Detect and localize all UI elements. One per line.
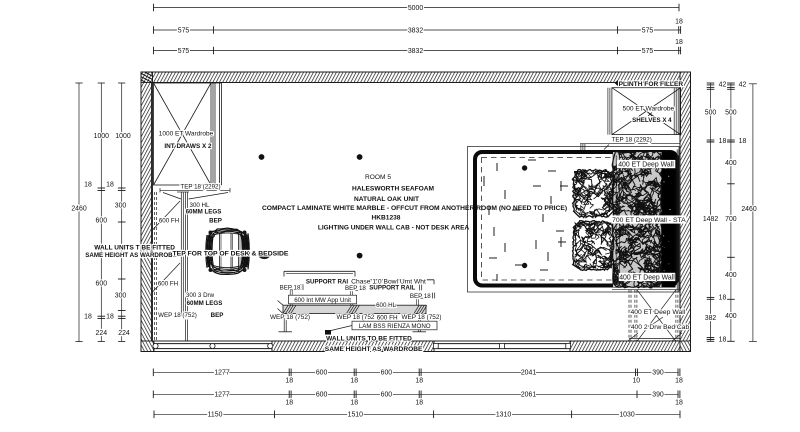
svg-text:575: 575 [642, 27, 654, 34]
svg-text:2041: 2041 [521, 370, 536, 377]
svg-text:INT DRAWS X 2: INT DRAWS X 2 [164, 143, 212, 150]
svg-text:1000: 1000 [115, 133, 130, 140]
svg-text:1150: 1150 [208, 412, 223, 419]
svg-text:400 ET Deep Wall: 400 ET Deep Wall [619, 274, 675, 281]
svg-text:500 ET Wardrobe: 500 ET Wardrobe [623, 106, 675, 113]
svg-text:2460: 2460 [71, 206, 86, 213]
svg-text:1310: 1310 [496, 412, 511, 419]
svg-text:18: 18 [675, 19, 683, 26]
svg-text:60MM LEGS: 60MM LEGS [186, 209, 222, 216]
svg-text:1030: 1030 [619, 412, 634, 419]
svg-text:600 HL: 600 HL [376, 302, 397, 309]
svg-text:BEP: BEP [211, 312, 224, 319]
svg-text:3832: 3832 [408, 48, 423, 55]
svg-text:18: 18 [84, 182, 92, 189]
svg-text:500: 500 [725, 110, 737, 117]
svg-text:382: 382 [705, 315, 717, 322]
svg-text:60MM LEGS: 60MM LEGS [187, 300, 223, 307]
svg-text:18: 18 [675, 400, 683, 407]
svg-text:SUPPORT RAIL: SUPPORT RAIL [369, 285, 415, 292]
svg-text:600: 600 [381, 392, 393, 399]
svg-text:500: 500 [705, 110, 717, 117]
svg-text:NATURAL OAK UNIT: NATURAL OAK UNIT [354, 196, 419, 203]
svg-text:300 3 Drw: 300 3 Drw [186, 292, 215, 299]
svg-text:18: 18 [415, 400, 423, 407]
svg-text:1510: 1510 [348, 412, 363, 419]
svg-text:1277: 1277 [214, 370, 229, 377]
svg-text:ROOM 5: ROOM 5 [365, 174, 391, 181]
svg-text:600: 600 [96, 218, 108, 225]
svg-text:42: 42 [739, 82, 747, 89]
svg-text:LAM BSS RIENZA MONO: LAM BSS RIENZA MONO [359, 323, 431, 330]
svg-text:WEP 18 (752): WEP 18 (752) [158, 312, 197, 319]
svg-text:TEP FOR TOP OF DESK & BEDSIDE: TEP FOR TOP OF DESK & BEDSIDE [173, 250, 289, 257]
svg-text:1000: 1000 [94, 133, 109, 140]
svg-text:1000 ET Wardrobe: 1000 ET Wardrobe [159, 131, 214, 138]
svg-text:WEP 18 (752): WEP 18 (752) [401, 314, 441, 321]
svg-text:TEP 18 (2292): TEP 18 (2292) [612, 137, 652, 144]
svg-text:BEP 18: BEP 18 [345, 285, 366, 292]
svg-text:18: 18 [675, 378, 683, 385]
svg-text:18: 18 [84, 314, 92, 321]
svg-text:18: 18 [285, 400, 293, 407]
svg-text:18: 18 [675, 39, 683, 46]
svg-text:400: 400 [725, 272, 737, 279]
svg-text:COMPACT LAMINATE WHITE MARBLE: COMPACT LAMINATE WHITE MARBLE - OFFCUT F… [262, 205, 567, 212]
svg-text:400 2 Drw Bed Cab: 400 2 Drw Bed Cab [631, 324, 690, 331]
svg-text:10: 10 [632, 378, 640, 385]
svg-text:300: 300 [115, 203, 127, 210]
svg-text:WEP 18 (752): WEP 18 (752) [270, 314, 310, 321]
svg-text:600 FH: 600 FH [377, 315, 398, 322]
svg-text:18: 18 [739, 138, 747, 145]
svg-text:HALESWORTH SEAFOAM: HALESWORTH SEAFOAM [352, 186, 435, 193]
svg-text:TEP 18 (2292): TEP 18 (2292) [180, 183, 220, 190]
svg-text:18: 18 [719, 138, 727, 145]
svg-text:18: 18 [106, 182, 114, 189]
svg-text:600 Int MW App Unit: 600 Int MW App Unit [294, 297, 351, 304]
svg-text:575: 575 [642, 48, 654, 55]
svg-text:HKB1238: HKB1238 [372, 215, 401, 222]
svg-text:42: 42 [719, 82, 727, 89]
svg-text:400: 400 [725, 160, 737, 167]
svg-text:5000: 5000 [408, 5, 423, 12]
svg-text:2460: 2460 [741, 206, 756, 213]
svg-text:WEP 18 (752: WEP 18 (752 [337, 314, 375, 321]
svg-text:LIGHTING UNDER WALL CAB - NOT: LIGHTING UNDER WALL CAB - NOT DESK AREA [318, 225, 470, 232]
svg-text:600: 600 [381, 370, 393, 377]
svg-text:224: 224 [118, 330, 130, 337]
svg-text:3832: 3832 [408, 27, 423, 34]
svg-text:18: 18 [350, 378, 358, 385]
svg-text:1277: 1277 [214, 392, 229, 399]
svg-text:BEP: BEP [209, 218, 222, 225]
svg-text:600: 600 [316, 392, 328, 399]
svg-text:SUPPORT RAI: SUPPORT RAI [306, 278, 349, 285]
svg-text:300: 300 [115, 293, 127, 300]
svg-text:SAME HEIGHT AS WARDROBE: SAME HEIGHT AS WARDROBE [85, 252, 177, 259]
svg-text:600: 600 [316, 370, 328, 377]
svg-text:2061: 2061 [521, 392, 536, 399]
svg-text:390: 390 [652, 370, 664, 377]
svg-text:18: 18 [719, 337, 727, 344]
svg-text:18: 18 [285, 378, 293, 385]
svg-text:400: 400 [725, 313, 737, 320]
svg-text:18: 18 [106, 314, 114, 321]
svg-text:BEP 18: BEP 18 [410, 293, 431, 300]
svg-text:400 ET Deep Wall: 400 ET Deep Wall [631, 309, 686, 316]
svg-text:390: 390 [652, 392, 664, 399]
svg-text:WALL UNITS TO BE FITTED: WALL UNITS TO BE FITTED [326, 336, 412, 343]
svg-text:600: 600 [96, 281, 108, 288]
svg-text:575: 575 [178, 48, 190, 55]
svg-text:600 FH: 600 FH [159, 218, 179, 225]
svg-text:SAME HEIGHT AS WARDROBE: SAME HEIGHT AS WARDROBE [325, 346, 423, 353]
svg-text:700 ET Deep Wall - STA: 700 ET Deep Wall - STA [612, 217, 686, 224]
svg-text:1482: 1482 [703, 216, 718, 223]
svg-text:224: 224 [96, 330, 108, 337]
svg-text:PLINTH FOR FILLER: PLINTH FOR FILLER [619, 81, 684, 88]
svg-text:SHELVES X 4: SHELVES X 4 [632, 117, 672, 124]
svg-text:WALL UNITS T BE FITTED: WALL UNITS T BE FITTED [94, 245, 175, 252]
svg-text:600 FH: 600 FH [158, 281, 178, 288]
svg-text:BEP 18: BEP 18 [280, 284, 301, 291]
svg-text:18: 18 [415, 378, 423, 385]
svg-text:18: 18 [350, 400, 358, 407]
svg-text:18: 18 [719, 295, 727, 302]
svg-text:400 ET Deep Wall: 400 ET Deep Wall [618, 161, 674, 168]
svg-text:700: 700 [725, 216, 737, 223]
svg-text:575: 575 [178, 27, 190, 34]
